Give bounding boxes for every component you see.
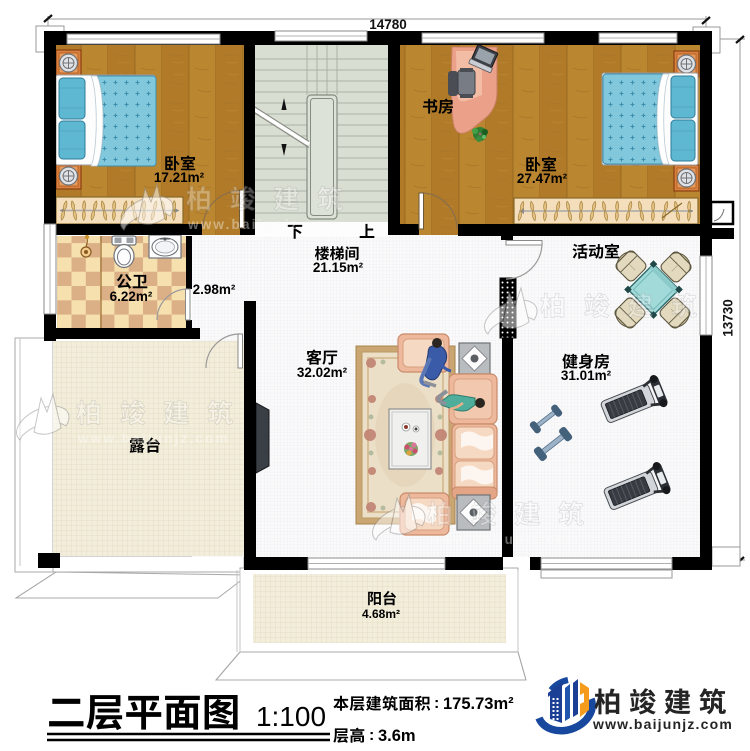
svg-text:2.98m²: 2.98m² (193, 282, 236, 297)
svg-text:1:100: 1:100 (256, 701, 326, 732)
svg-text:www.baijunjz.com: www.baijunjz.com (187, 217, 340, 232)
svg-text:www.baijunjz.com: www.baijunjz.com (592, 716, 733, 732)
svg-text:27.47m²: 27.47m² (517, 171, 568, 186)
svg-text::: : (434, 695, 439, 712)
svg-text:14780: 14780 (369, 17, 407, 32)
svg-text:175.73m²: 175.73m² (443, 695, 514, 713)
svg-text:www.baijunjz.com: www.baijunjz.com (541, 324, 694, 339)
svg-text:21.15m²: 21.15m² (313, 260, 364, 275)
svg-text:32.02m²: 32.02m² (297, 365, 348, 380)
svg-text:4.68m²: 4.68m² (362, 607, 400, 621)
svg-text:3.6m: 3.6m (378, 727, 416, 745)
svg-text:13730: 13730 (721, 299, 736, 337)
svg-text:17.21m²: 17.21m² (154, 170, 205, 185)
svg-text:www.baijunjz.com: www.baijunjz.com (428, 532, 581, 547)
svg-text:31.01m²: 31.01m² (561, 368, 612, 383)
svg-text:www.baijunjz.com: www.baijunjz.com (77, 431, 230, 446)
svg-text::: : (369, 727, 374, 744)
svg-text:6.22m²: 6.22m² (110, 289, 153, 304)
